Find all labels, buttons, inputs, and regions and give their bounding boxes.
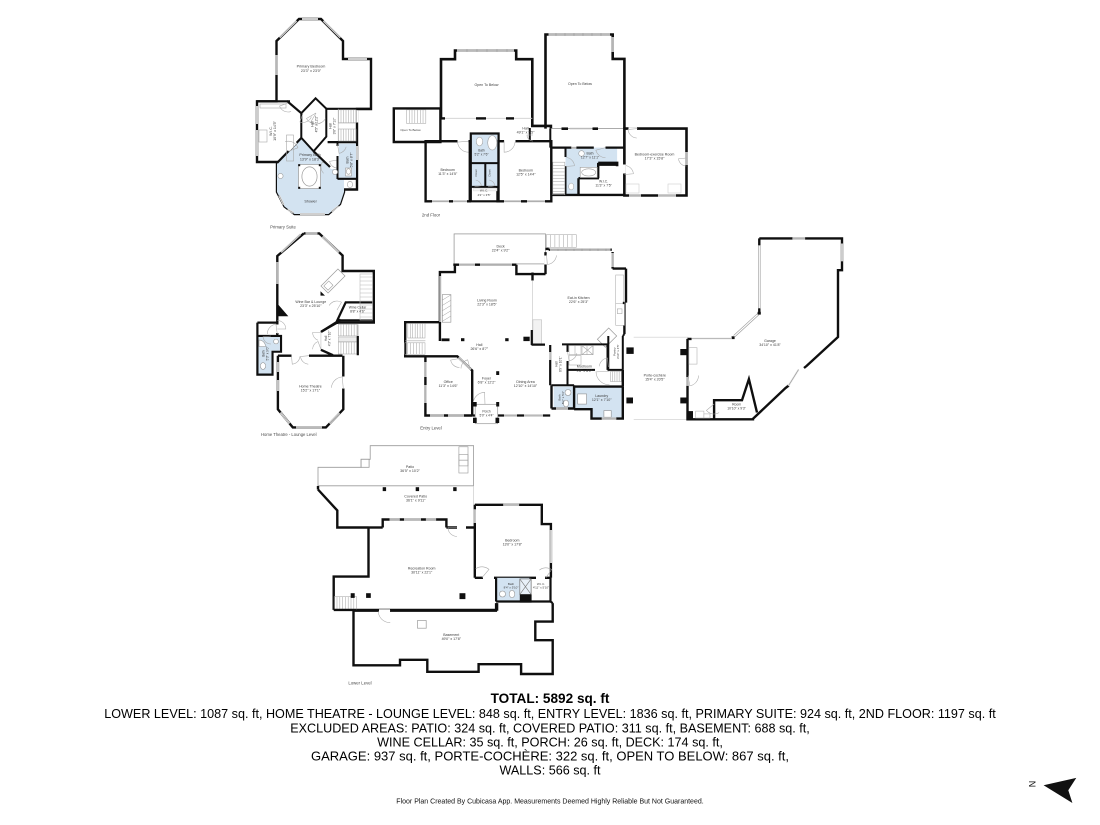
svg-text:LOWER LEVEL: 1087 sq. ft, HOME: LOWER LEVEL: 1087 sq. ft, HOME THEATRE -… — [104, 707, 996, 721]
svg-text:EXCLUDED AREAS: PATIO: 324 sq.: EXCLUDED AREAS: PATIO: 324 sq. ft, COVER… — [290, 722, 810, 736]
svg-text:Living Room22'3" x 18'5": Living Room22'3" x 18'5" — [477, 299, 497, 307]
svg-text:Closet: Closet — [488, 169, 492, 177]
svg-text:Basement49'0" x 17'8": Basement49'0" x 17'8" — [442, 633, 462, 641]
svg-text:2nd Floor: 2nd Floor — [422, 213, 441, 218]
svg-text:Open To Below: Open To Below — [568, 82, 592, 86]
svg-text:Mudroom9'8" x 8'1": Mudroom9'8" x 8'1" — [576, 365, 592, 373]
svg-text:TOTAL: 5892 sq. ft: TOTAL: 5892 sq. ft — [491, 691, 610, 706]
svg-text:N: N — [1027, 781, 1037, 788]
svg-text:Home Theatre - Lounge Level: Home Theatre - Lounge Level — [261, 432, 317, 437]
svg-text:Closet: Closet — [474, 169, 478, 177]
svg-text:Porte-cochère15'4" x 20'5": Porte-cochère15'4" x 20'5" — [644, 373, 666, 381]
svg-text:WALLS: 566 sq. ft: WALLS: 566 sq. ft — [499, 764, 601, 778]
svg-text:GARAGE: 937 sq. ft, PORTE-COCH: GARAGE: 937 sq. ft, PORTE-COCHÈRE: 322 s… — [311, 749, 789, 764]
svg-text:Covered Patio36'1" x 9'11": Covered Patio36'1" x 9'11" — [404, 494, 427, 502]
svg-text:Primary Bath13'9" x 18'3": Primary Bath13'9" x 18'3" — [299, 153, 320, 161]
svg-text:Lower Level: Lower Level — [348, 681, 371, 686]
svg-text:Open To Below: Open To Below — [475, 83, 499, 87]
svg-text:Home Theatre15'2" x 17'1": Home Theatre15'2" x 17'1" — [299, 385, 322, 393]
svg-text:Primary Suite: Primary Suite — [270, 225, 296, 230]
svg-text:Eat-in Kitchen22'6" x 25'3": Eat-in Kitchen22'6" x 25'3" — [568, 296, 590, 304]
svg-text:Shower: Shower — [304, 200, 317, 204]
svg-text:WINE CELLAR: 35 sq. ft, PORCH:: WINE CELLAR: 35 sq. ft, PORCH: 26 sq. ft… — [377, 736, 723, 750]
svg-text:4'2" x 3'5": 4'2" x 3'5" — [477, 193, 490, 197]
svg-text:Primary Bedroom23'3" x 23'0": Primary Bedroom23'3" x 23'0" — [297, 65, 326, 73]
svg-text:Recreation Room30'11" x 22'1": Recreation Room30'11" x 22'1" — [408, 567, 436, 575]
svg-text:Open To Below: Open To Below — [400, 128, 421, 132]
svg-text:Entry Level: Entry Level — [420, 426, 442, 431]
svg-text:Wine Cellar8'8" x 4'6": Wine Cellar8'8" x 4'6" — [349, 306, 367, 314]
svg-text:Dining Area12'10" x 14'10": Dining Area12'10" x 14'10" — [514, 380, 538, 388]
svg-text:Floor Plan Created By Cubicasa: Floor Plan Created By Cubicasa App. Meas… — [396, 799, 703, 806]
